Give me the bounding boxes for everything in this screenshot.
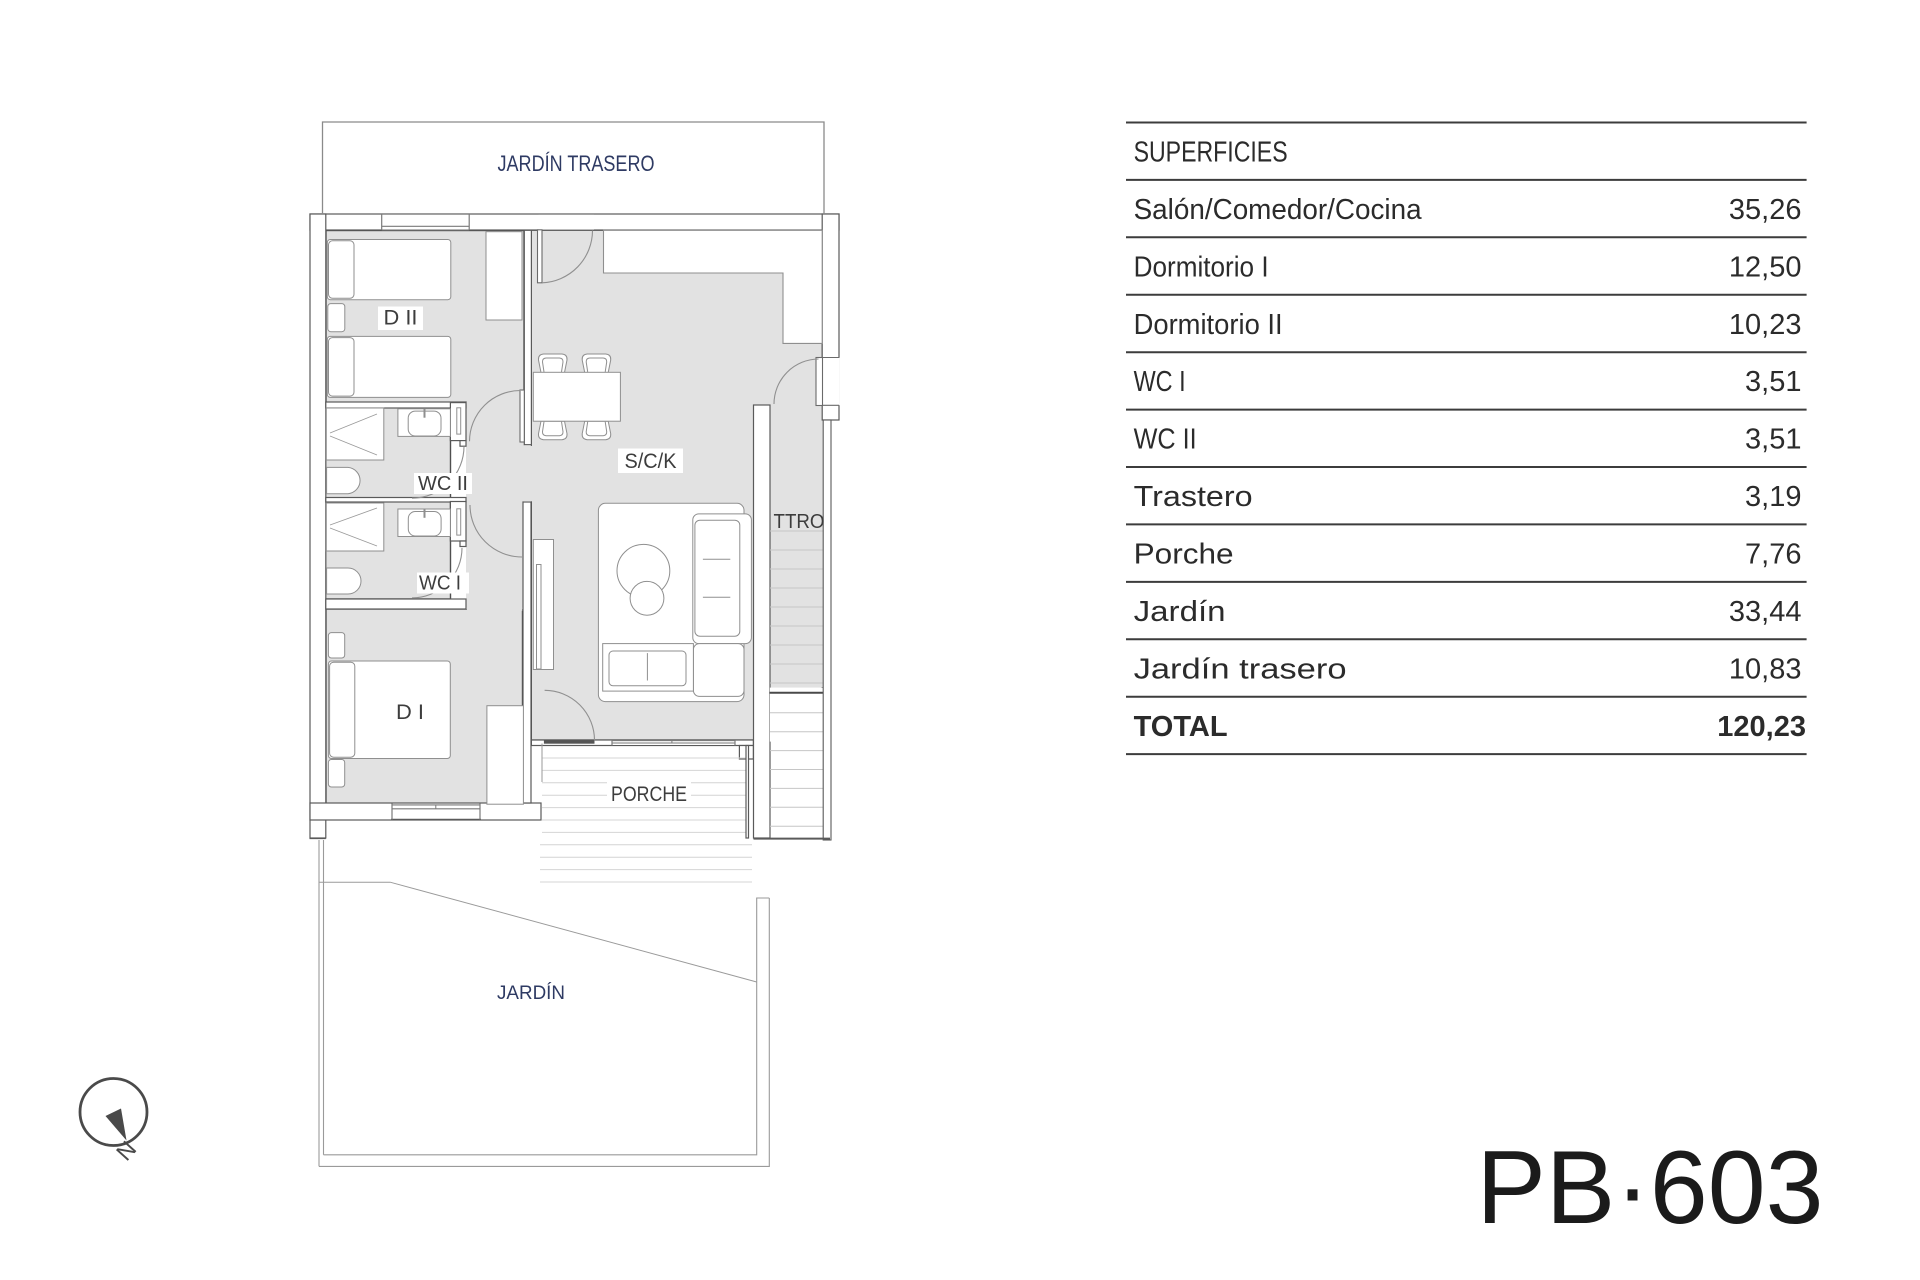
svg-text:Jardín: Jardín: [1134, 596, 1226, 628]
svg-text:Trastero: Trastero: [1134, 481, 1253, 513]
svg-text:33,44: 33,44: [1729, 596, 1802, 628]
svg-text:PB·603: PB·603: [1477, 1130, 1824, 1246]
svg-text:Jardín trasero: Jardín trasero: [1134, 653, 1347, 685]
svg-text:S/C/K: S/C/K: [625, 450, 677, 473]
svg-text:Dormitorio II: Dormitorio II: [1134, 309, 1283, 341]
svg-text:WC II: WC II: [418, 473, 468, 495]
svg-text:WC II: WC II: [1134, 424, 1197, 456]
svg-text:WC I: WC I: [419, 573, 461, 595]
svg-text:35,26: 35,26: [1729, 194, 1802, 226]
svg-text:12,50: 12,50: [1729, 251, 1802, 283]
svg-text:WC I: WC I: [1134, 366, 1186, 398]
svg-text:3,19: 3,19: [1745, 481, 1801, 513]
svg-text:10,23: 10,23: [1729, 309, 1802, 341]
svg-text:3,51: 3,51: [1745, 366, 1801, 398]
svg-text:JARDÍN TRASERO: JARDÍN TRASERO: [498, 151, 655, 176]
svg-text:D I: D I: [396, 701, 424, 724]
svg-text:SUPERFICIES: SUPERFICIES: [1134, 137, 1288, 169]
svg-text:TTRO: TTRO: [774, 511, 825, 533]
svg-text:3,51: 3,51: [1745, 424, 1801, 456]
svg-text:JARDÍN: JARDÍN: [497, 983, 565, 1004]
svg-text:Salón/Comedor/Cocina: Salón/Comedor/Cocina: [1134, 194, 1423, 226]
svg-text:120,23: 120,23: [1717, 711, 1806, 743]
svg-text:7,76: 7,76: [1745, 539, 1801, 571]
svg-text:Porche: Porche: [1134, 539, 1234, 571]
svg-text:Dormitorio I: Dormitorio I: [1134, 251, 1269, 283]
svg-text:D II: D II: [384, 307, 418, 330]
svg-text:10,83: 10,83: [1729, 653, 1802, 685]
svg-text:PORCHE: PORCHE: [611, 783, 687, 806]
svg-text:TOTAL: TOTAL: [1134, 711, 1228, 743]
